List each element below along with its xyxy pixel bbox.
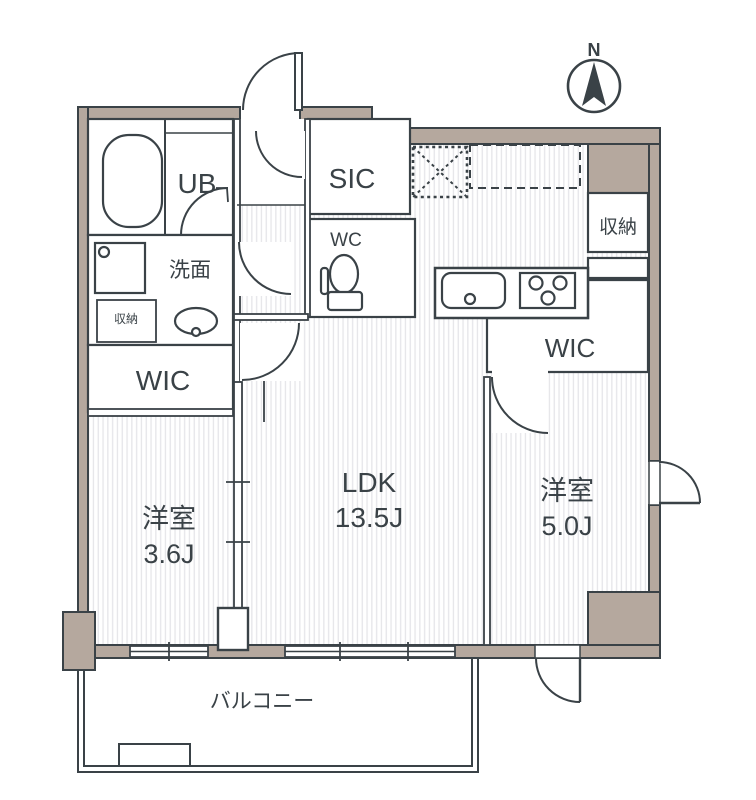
label-unit-bath: UB xyxy=(178,168,217,199)
door-wicr-gap xyxy=(492,368,548,377)
label-bedroom-right-size: 5.0J xyxy=(541,511,592,541)
label-bedroom-right: 洋室 xyxy=(540,476,594,506)
label-ldk-size: 13.5J xyxy=(335,502,404,533)
label-wic-left: WIC xyxy=(136,365,190,396)
floorplan-page: N UB 洗面 収納 WIC SIC WC 収納 WIC LDK 13.5J 洋… xyxy=(0,0,756,800)
washer-drain xyxy=(99,247,109,257)
basin-drain xyxy=(192,328,200,336)
label-bedroom-left: 洋室 xyxy=(142,504,196,534)
door-right-arc xyxy=(659,462,700,503)
burner-1 xyxy=(530,277,543,290)
wall-bedroomleft-ldk xyxy=(234,382,242,645)
door-bottom-arc xyxy=(536,658,580,702)
toilet-tank xyxy=(328,292,362,310)
label-storage-right: 収納 xyxy=(599,216,637,238)
door-right-gap xyxy=(649,461,660,505)
burner-2 xyxy=(554,277,567,290)
label-sic: SIC xyxy=(329,163,376,194)
label-ldk: LDK xyxy=(342,467,397,498)
toilet-lever xyxy=(321,268,328,294)
balcony-notch xyxy=(119,744,190,766)
shelf-box-right xyxy=(588,258,648,278)
pillar-bottom-mid xyxy=(218,608,248,650)
label-wc: WC xyxy=(330,230,362,251)
wall-top-right xyxy=(368,128,660,144)
pillar-bottom-left xyxy=(63,612,95,670)
door-bottom-gap xyxy=(535,645,580,658)
wall-ldk-bedroomright xyxy=(484,377,490,645)
compass: N xyxy=(568,40,620,112)
wall-corner-topright xyxy=(588,144,649,193)
burner-3 xyxy=(542,292,555,305)
entrance-door-leaf xyxy=(295,53,302,110)
wall-right-upper xyxy=(649,144,660,461)
label-storage-small: 収納 xyxy=(114,312,138,326)
wall-wic-left-bottom xyxy=(88,409,233,416)
label-balcony: バルコニー xyxy=(210,690,315,713)
wall-left xyxy=(78,107,88,658)
floorplan-drawing: N UB 洗面 収納 WIC SIC WC 収納 WIC LDK 13.5J 洋… xyxy=(0,0,756,800)
wall-corridor-right xyxy=(305,119,310,317)
toilet-bowl xyxy=(330,255,358,293)
sink-faucet xyxy=(465,294,475,304)
entrance-door-arc xyxy=(243,53,300,110)
compass-n-label: N xyxy=(588,40,601,60)
label-bedroom-left-size: 3.6J xyxy=(143,539,194,569)
wall-corridor-mid xyxy=(234,314,308,320)
label-washroom: 洗面 xyxy=(169,259,211,282)
north-arrow-icon xyxy=(582,62,606,106)
balcony xyxy=(78,658,478,772)
label-wic-right: WIC xyxy=(545,333,596,363)
bathtub xyxy=(103,135,162,227)
